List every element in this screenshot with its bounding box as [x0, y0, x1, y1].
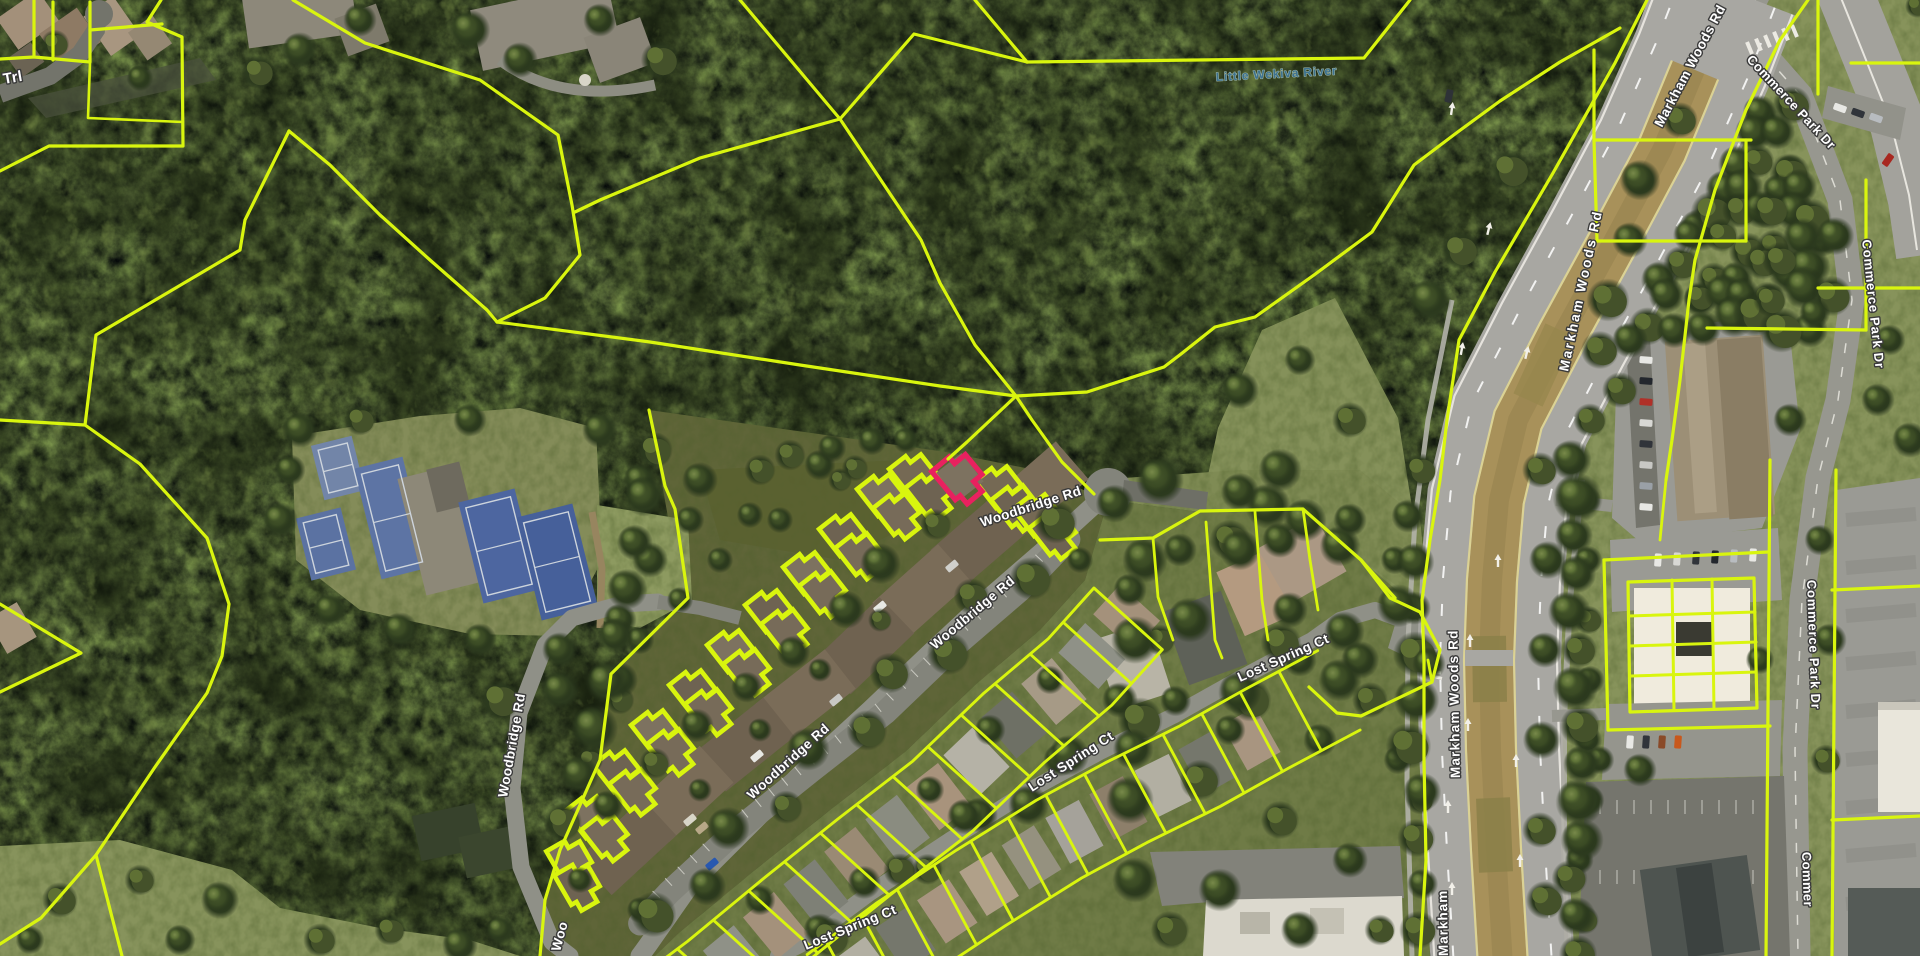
svg-text:Markham: Markham [1435, 890, 1451, 956]
svg-text:Trl: Trl [2, 68, 24, 88]
svg-text:Markham Woods Rd: Markham Woods Rd [1445, 629, 1463, 778]
svg-text:Commer: Commer [1799, 852, 1816, 908]
